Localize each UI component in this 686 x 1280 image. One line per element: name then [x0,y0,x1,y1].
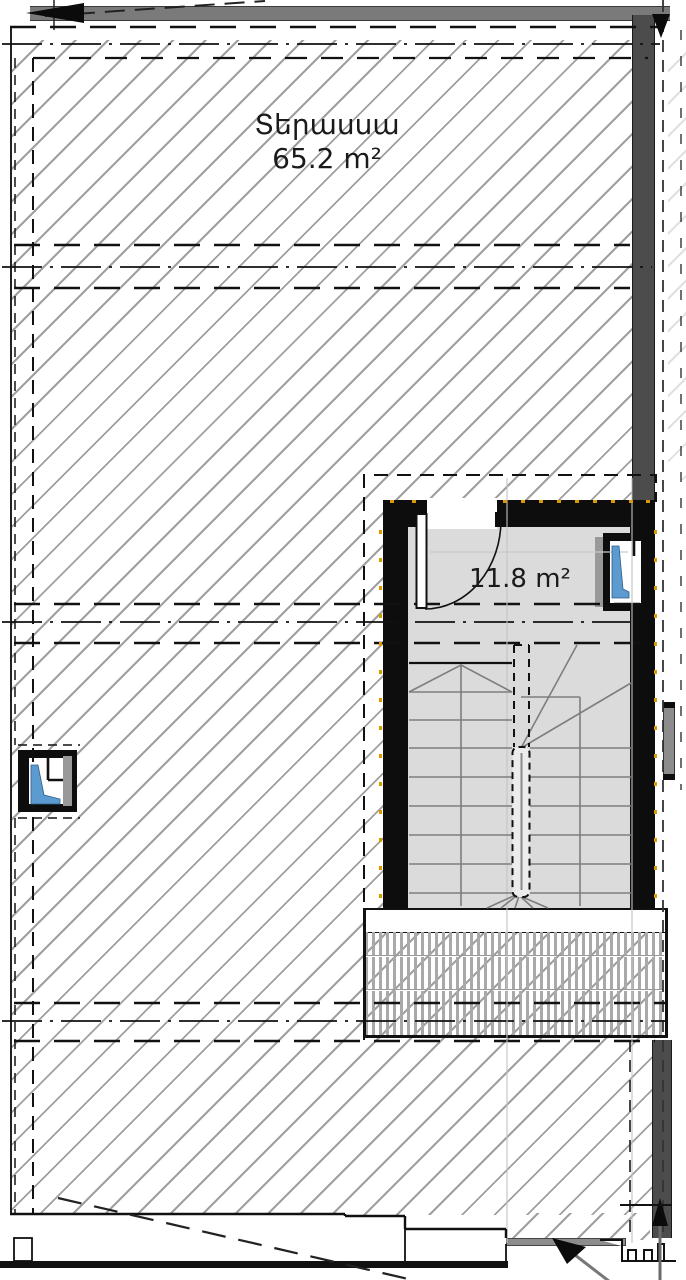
stair-winders [521,645,631,748]
roof-overhang-dashed-rects [33,58,656,1213]
right-up-arrow-head-icon [652,1198,668,1226]
right-window-details [612,541,634,598]
terrace-label: Տերասսա 65.2 m² [177,108,477,176]
beam-line-groups [2,27,668,1041]
left-window-details [18,745,80,818]
terrace-room-name: Տերասսա [177,108,477,142]
right-up-arrow [620,1198,672,1280]
top-slope-annotation [26,1,670,38]
stair-handrail [513,645,530,897]
floor-plan-canvas: Տերասսա 65.2 m² 11.8 m² [0,0,686,1280]
stairwell-room-area: 11.8 m² [430,564,610,596]
stairwell-area-label: 11.8 m² [430,564,610,596]
slope-arrow-left-icon [26,3,84,23]
terrace-room-area: 65.2 m² [177,142,477,176]
right-margin-dashed-lines [630,0,681,1240]
slope-diagonal-dashed [58,1198,430,1280]
left-window-glass-shade [31,765,60,804]
linework-overlay [0,0,686,1280]
door-leaf [417,514,427,608]
entry-steps [10,1214,506,1261]
right-window-glass-shade [612,546,629,598]
drainage-grate-profile [600,1240,676,1261]
